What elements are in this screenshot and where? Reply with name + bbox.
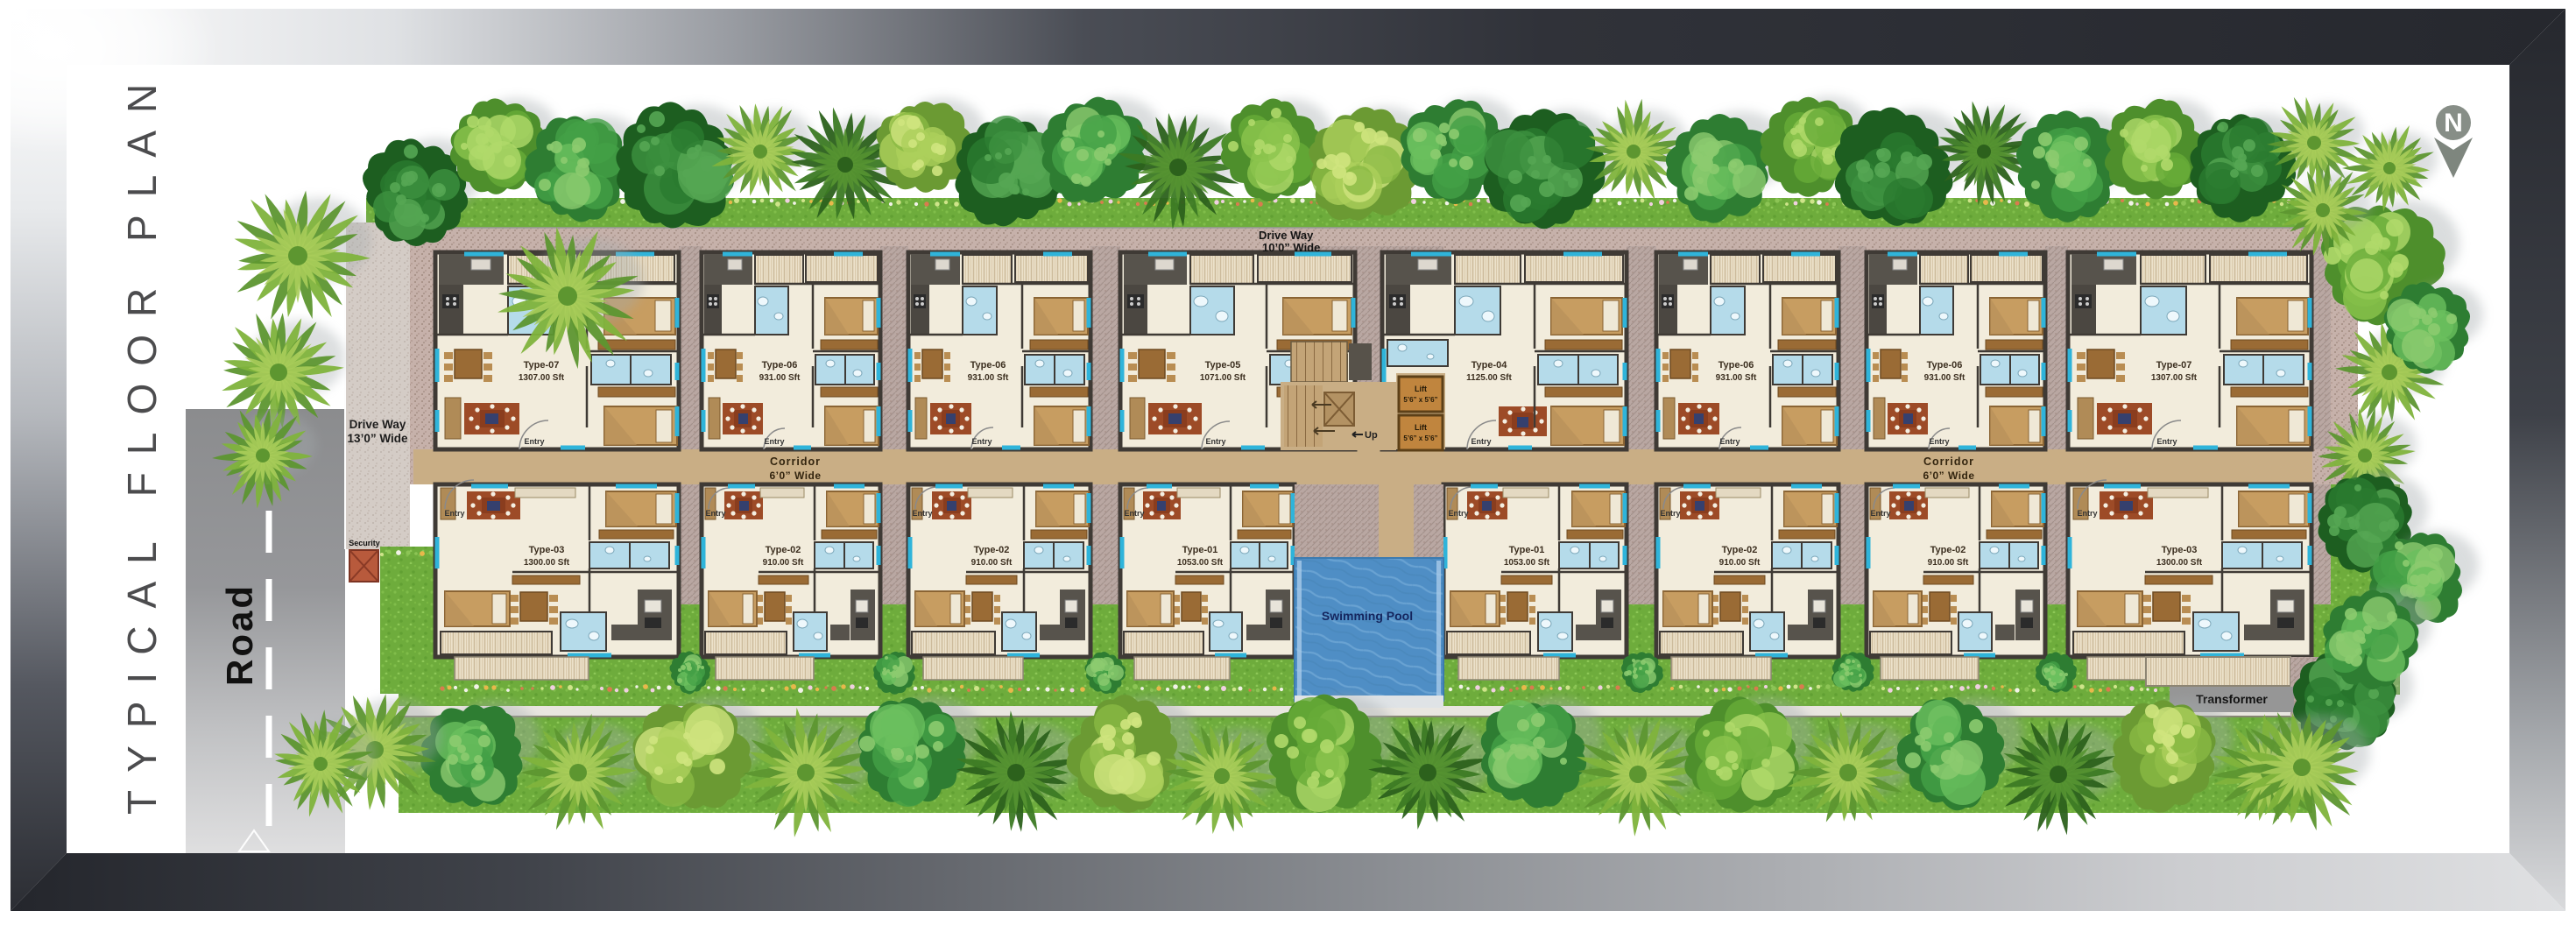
svg-text:910.00 Sft: 910.00 Sft — [1719, 558, 1761, 568]
svg-text:Type-02: Type-02 — [1722, 545, 1758, 555]
svg-text:Security: Security — [349, 539, 380, 547]
svg-text:Type-06: Type-06 — [1927, 360, 1963, 371]
svg-text:Entry: Entry — [1124, 509, 1144, 518]
svg-text:Type-05: Type-05 — [1205, 360, 1241, 371]
svg-text:Entry: Entry — [524, 437, 544, 446]
svg-text:1125.00 Sft: 1125.00 Sft — [1466, 373, 1512, 383]
svg-text:Up: Up — [1365, 430, 1378, 441]
svg-text:Type-02: Type-02 — [766, 545, 801, 555]
svg-text:Type-02: Type-02 — [974, 545, 1010, 555]
svg-text:Type-07: Type-07 — [2156, 360, 2192, 371]
svg-text:Entry: Entry — [1660, 509, 1680, 518]
svg-text:1071.00 Sft: 1071.00 Sft — [1200, 373, 1246, 383]
svg-text:Type-01: Type-01 — [1509, 545, 1545, 555]
svg-text:13’0” Wide: 13’0” Wide — [348, 432, 408, 445]
svg-text:N: N — [2444, 109, 2463, 138]
svg-text:6’0” Wide: 6’0” Wide — [1923, 470, 1974, 482]
svg-text:Entry: Entry — [444, 509, 464, 518]
svg-text:Entry: Entry — [912, 509, 932, 518]
svg-text:910.00 Sft: 910.00 Sft — [1928, 558, 1969, 568]
svg-text:5’6” x 5’6”: 5’6” x 5’6” — [1403, 434, 1437, 442]
svg-text:Type-04: Type-04 — [1471, 360, 1508, 371]
svg-text:Entry: Entry — [971, 437, 992, 446]
svg-text:Entry: Entry — [1205, 437, 1225, 446]
svg-text:910.00 Sft: 910.00 Sft — [971, 558, 1013, 568]
svg-text:1300.00 Sft: 1300.00 Sft — [524, 558, 570, 568]
svg-text:1053.00 Sft: 1053.00 Sft — [1504, 558, 1550, 568]
svg-text:931.00 Sft: 931.00 Sft — [1924, 373, 1966, 383]
svg-text:Entry: Entry — [2156, 437, 2177, 446]
svg-text:Corridor: Corridor — [770, 455, 821, 468]
svg-text:Entry: Entry — [1929, 437, 1949, 446]
svg-text:Drive Way: Drive Way — [349, 418, 406, 431]
svg-text:Entry: Entry — [1448, 509, 1468, 518]
svg-text:Type-06: Type-06 — [1719, 360, 1754, 371]
svg-text:Entry: Entry — [1719, 437, 1740, 446]
svg-text:1307.00 Sft: 1307.00 Sft — [519, 373, 565, 383]
svg-text:Type-06: Type-06 — [970, 360, 1006, 371]
svg-text:Type-06: Type-06 — [762, 360, 798, 371]
svg-text:931.00 Sft: 931.00 Sft — [968, 373, 1009, 383]
svg-text:Road: Road — [219, 583, 260, 686]
svg-text:Drive Way: Drive Way — [1259, 229, 1314, 242]
svg-text:10’0” Wide: 10’0” Wide — [1262, 241, 1320, 254]
svg-text:1307.00 Sft: 1307.00 Sft — [2151, 373, 2198, 383]
svg-text:Swimming Pool: Swimming Pool — [1322, 609, 1413, 623]
svg-text:Entry: Entry — [705, 509, 725, 518]
svg-text:Lift: Lift — [1415, 423, 1427, 432]
svg-text:Type-03: Type-03 — [2162, 545, 2198, 555]
svg-text:6’0” Wide: 6’0” Wide — [769, 470, 821, 482]
svg-text:Type-02: Type-02 — [1930, 545, 1966, 555]
svg-text:1300.00 Sft: 1300.00 Sft — [2156, 558, 2203, 568]
svg-text:931.00 Sft: 931.00 Sft — [1716, 373, 1757, 383]
svg-text:1053.00 Sft: 1053.00 Sft — [1177, 558, 1224, 568]
svg-text:Type-03: Type-03 — [529, 545, 565, 555]
svg-text:Entry: Entry — [764, 437, 784, 446]
svg-text:Lift: Lift — [1415, 385, 1427, 393]
svg-text:Type-01: Type-01 — [1182, 545, 1218, 555]
svg-text:Corridor: Corridor — [1923, 455, 1974, 468]
svg-text:931.00 Sft: 931.00 Sft — [759, 373, 801, 383]
svg-text:Entry: Entry — [1870, 509, 1890, 518]
svg-text:5’6” x 5’6”: 5’6” x 5’6” — [1403, 396, 1437, 404]
svg-text:Entry: Entry — [1471, 437, 1491, 446]
svg-text:TYPICAL FLOOR PLAN: TYPICAL FLOOR PLAN — [119, 67, 165, 815]
svg-text:910.00 Sft: 910.00 Sft — [763, 558, 804, 568]
svg-text:Entry: Entry — [2077, 509, 2097, 518]
svg-text:Type-07: Type-07 — [524, 360, 560, 371]
